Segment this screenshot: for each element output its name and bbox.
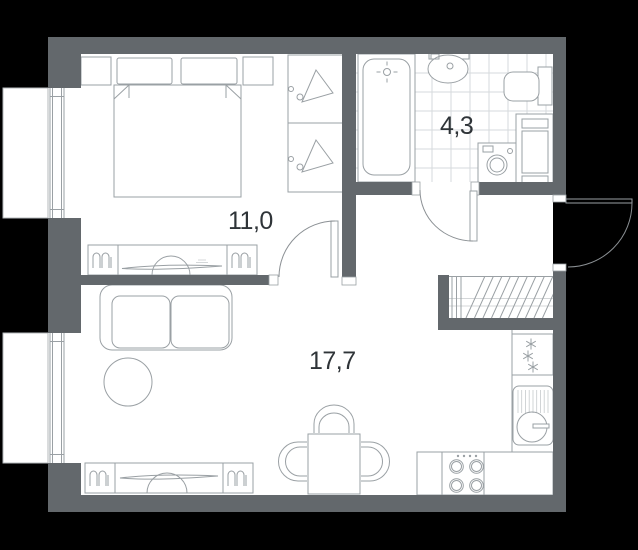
- blanket: [114, 85, 241, 197]
- wall-bathroom-left-seg: [356, 182, 412, 195]
- kitchen-counter: [417, 452, 553, 495]
- wall-left-pier-mid: [48, 218, 81, 333]
- wall-bedroom-living: [81, 275, 269, 285]
- sofa-cushion: [112, 296, 170, 348]
- washing-machine: [478, 143, 517, 183]
- wall-right-upper: [553, 37, 566, 195]
- bathroom-cabinet: [516, 114, 553, 188]
- toilet: [504, 67, 552, 105]
- bedroom-area-label: 11,0: [228, 207, 273, 235]
- floor-plan: 11,0 4,3 17,7: [0, 0, 638, 550]
- fridge: [512, 334, 553, 375]
- wall-bedroom-hall: [342, 54, 356, 277]
- sofa-cushion: [171, 296, 229, 348]
- wall-bottom: [48, 495, 566, 512]
- wall-left-pier-top: [48, 37, 81, 88]
- bathroom-area-label: 4,3: [440, 112, 473, 140]
- balcony-bay-upper: [3, 88, 48, 218]
- sofa: [100, 285, 232, 350]
- pillow-left: [117, 58, 172, 84]
- nightstand-left: [81, 57, 111, 85]
- pillow-right: [181, 58, 237, 84]
- balcony-bay-lower: [3, 333, 48, 463]
- wall-right-lower: [553, 271, 566, 512]
- living-area-label: 17,7: [309, 347, 356, 375]
- nightstand-right: [243, 57, 273, 85]
- floor-plan-drawing: 11,0 4,3 17,7: [0, 0, 638, 550]
- tv-console-bedroom: [88, 245, 257, 275]
- bathtub: [358, 54, 415, 182]
- coffee-table: [104, 358, 152, 406]
- tv-console-living: [85, 463, 253, 493]
- washbasin: [428, 52, 469, 83]
- wall-bathroom-right-seg: [479, 182, 553, 195]
- wall-top: [48, 37, 566, 54]
- wardrobe: [288, 55, 343, 192]
- kitchen-sink: [513, 386, 553, 445]
- entrance-door: [566, 199, 632, 267]
- dining-table: [308, 434, 360, 494]
- wall-closet-bottom: [438, 318, 553, 330]
- stove: [442, 452, 484, 495]
- faucet: [533, 424, 549, 428]
